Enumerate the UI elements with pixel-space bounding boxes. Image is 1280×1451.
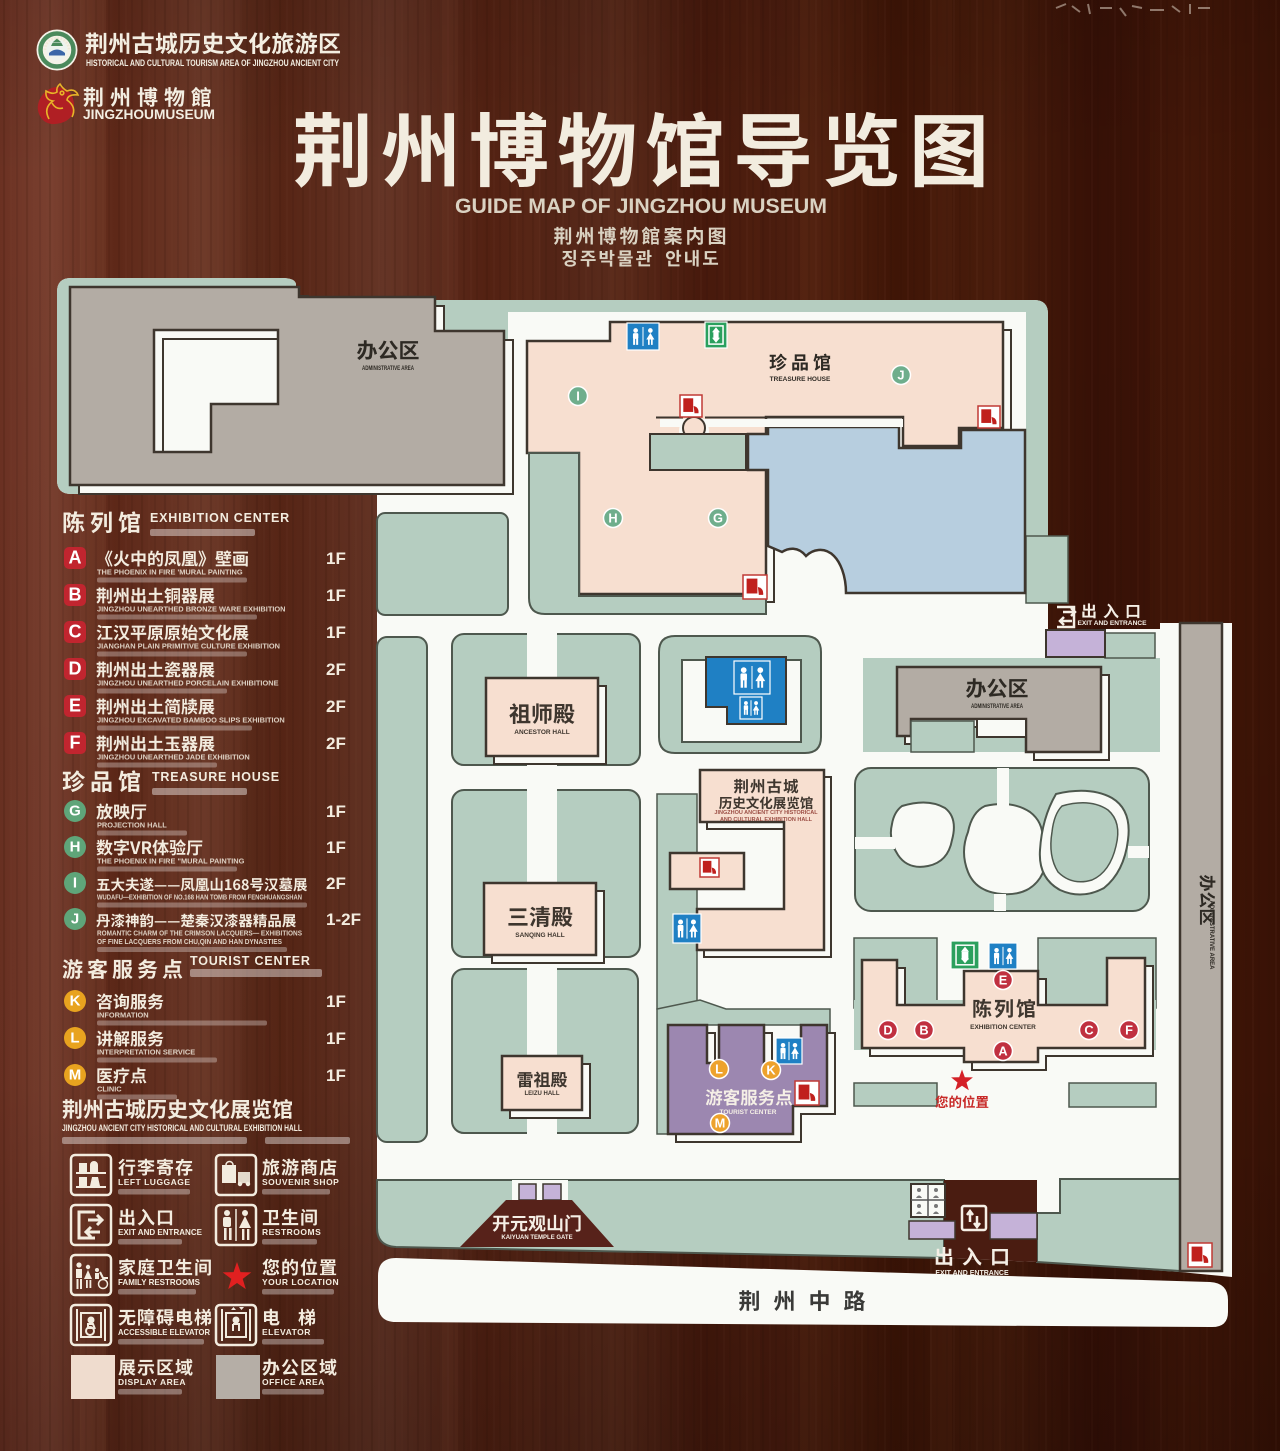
svg-text:JINGZHOU ANCIENT CITY HISTORIC: JINGZHOU ANCIENT CITY HISTORICAL (714, 810, 818, 816)
svg-text:SOUVENIR SHOP: SOUVENIR SHOP (262, 1177, 339, 1187)
svg-text:1-2F: 1-2F (326, 910, 361, 929)
svg-text:FAMILY RESTROOMS: FAMILY RESTROOMS (118, 1277, 200, 1287)
svg-text:B: B (919, 1023, 928, 1038)
svg-text:D: D (883, 1023, 892, 1038)
svg-text:ELEVATOR: ELEVATOR (262, 1327, 311, 1337)
svg-text:OF FINE LACQUERS FROM CHU,QIN: OF FINE LACQUERS FROM CHU,QIN AND HAN DY… (97, 937, 282, 946)
svg-text:WUDAFU—EXHIBITION OF NO.168 HA: WUDAFU—EXHIBITION OF NO.168 HAN TOMB FRO… (97, 893, 302, 902)
svg-text:JINGZHOU UNEARTHED PORCELAIN E: JINGZHOU UNEARTHED PORCELAIN EXHIBITIONE (97, 679, 279, 688)
svg-text:HISTORICAL AND CULTURAL TOURIS: HISTORICAL AND CULTURAL TOURISM AREA OF … (86, 58, 339, 68)
svg-text:F: F (69, 733, 80, 753)
svg-text:I: I (73, 875, 77, 892)
svg-text:EXIT AND ENTRANCE: EXIT AND ENTRANCE (118, 1227, 202, 1237)
svg-text:1F: 1F (326, 992, 346, 1011)
svg-text:JINGZHOU UNEARTHED JADE EXHIBI: JINGZHOU UNEARTHED JADE EXHIBITION (97, 753, 250, 762)
svg-text:D: D (68, 659, 81, 679)
svg-text:J: J (71, 911, 79, 928)
svg-text:YOUR LOCATION: YOUR LOCATION (262, 1277, 339, 1287)
svg-text:RESTROOMS: RESTROOMS (262, 1227, 321, 1237)
svg-text:EXHIBITION CENTER: EXHIBITION CENTER (970, 1024, 1036, 1031)
svg-text:L: L (715, 1062, 723, 1077)
svg-text:LEFT LUGGAGE: LEFT LUGGAGE (118, 1177, 191, 1187)
svg-text:OFFICE AREA: OFFICE AREA (262, 1377, 325, 1387)
svg-text:TOURIST CENTER: TOURIST CENTER (720, 1109, 777, 1116)
svg-text:A: A (68, 548, 81, 568)
svg-text:1F: 1F (326, 623, 346, 642)
svg-text:1F: 1F (326, 838, 346, 857)
svg-text:JINGZHOU UNEARTHED BRONZE WARE: JINGZHOU UNEARTHED BRONZE WARE EXHIBITIO… (97, 605, 285, 614)
svg-text:C: C (1084, 1023, 1093, 1038)
svg-text:AND CULTURAL EXHIBITION HALL: AND CULTURAL EXHIBITION HALL (720, 817, 813, 823)
svg-text:C: C (68, 622, 81, 642)
svg-text:1F: 1F (326, 549, 346, 568)
svg-text:JINGZHOUMUSEUM: JINGZHOUMUSEUM (83, 107, 215, 122)
svg-text:INTERPRETATION SERVICE: INTERPRETATION SERVICE (97, 1048, 195, 1057)
svg-text:G: G (69, 803, 81, 820)
svg-text:JINGZHOU EXCAVATED BAMBOO SLIP: JINGZHOU EXCAVATED BAMBOO SLIPS EXHIBITI… (97, 716, 285, 725)
svg-text:2F: 2F (326, 874, 346, 893)
svg-text:L: L (70, 1030, 79, 1047)
svg-text:LEIZU HALL: LEIZU HALL (525, 1091, 560, 1097)
svg-text:JIANGHAN PLAIN PRIMITIVE CULTU: JIANGHAN PLAIN PRIMITIVE CULTURE EXHIBIT… (97, 642, 280, 651)
svg-text:TREASURE HOUSE: TREASURE HOUSE (770, 376, 831, 383)
svg-text:ADMINISTRATIVE AREA: ADMINISTRATIVE AREA (971, 703, 1023, 710)
svg-text:1F: 1F (326, 802, 346, 821)
svg-text:G: G (713, 511, 723, 526)
svg-text:E: E (999, 973, 1008, 988)
svg-text:J: J (897, 368, 904, 383)
svg-text:M: M (69, 1067, 82, 1084)
svg-text:ACCESSIBLE ELEVATOR: ACCESSIBLE ELEVATOR (118, 1327, 210, 1337)
svg-text:K: K (766, 1063, 776, 1078)
svg-text:I: I (576, 389, 580, 404)
svg-text:EXHIBITION CENTER: EXHIBITION CENTER (150, 511, 290, 525)
svg-text:JINGZHOU ANCIENT CITY HISTORIC: JINGZHOU ANCIENT CITY HISTORICAL AND CUL… (62, 1123, 302, 1133)
svg-text:ADMINISTRATIVE AREA: ADMINISTRATIVE AREA (362, 365, 414, 372)
svg-text:INFORMATION: INFORMATION (97, 1011, 149, 1020)
svg-text:F: F (1125, 1023, 1133, 1038)
svg-text:A: A (998, 1044, 1007, 1059)
svg-text:ADMINISTRATIVE AREA: ADMINISTRATIVE AREA (1208, 901, 1214, 971)
svg-text:2F: 2F (326, 734, 346, 753)
svg-text:CLINIC: CLINIC (97, 1085, 122, 1094)
svg-text:K: K (70, 993, 81, 1010)
svg-text:TOURIST CENTER: TOURIST CENTER (190, 954, 311, 968)
svg-text:B: B (68, 585, 81, 605)
svg-text:DISPLAY AREA: DISPLAY AREA (118, 1377, 186, 1387)
svg-text:1F: 1F (326, 586, 346, 605)
svg-text:SANQING HALL: SANQING HALL (515, 932, 565, 939)
svg-text:PROJECTION HALL: PROJECTION HALL (97, 821, 167, 830)
svg-text:KAIYUAN TEMPLE GATE: KAIYUAN TEMPLE GATE (501, 1235, 572, 1241)
svg-text:GUIDE MAP OF JINGZHOU MUSEUM: GUIDE MAP OF JINGZHOU MUSEUM (455, 194, 827, 218)
svg-text:TREASURE HOUSE: TREASURE HOUSE (152, 770, 280, 784)
svg-text:THE PHOENIX IN FIRE 'MURAL PAI: THE PHOENIX IN FIRE 'MURAL PAINTING (97, 568, 243, 577)
svg-text:2F: 2F (326, 697, 346, 716)
svg-text:THE PHOENIX IN FIRE "MURAL PAI: THE PHOENIX IN FIRE "MURAL PAINTING (97, 857, 245, 866)
svg-text:H: H (608, 511, 617, 526)
svg-text:1F: 1F (326, 1029, 346, 1048)
svg-text:EXIT AND ENTRANCE: EXIT AND ENTRANCE (1078, 620, 1148, 627)
svg-text:E: E (69, 696, 81, 716)
svg-text:M: M (715, 1116, 726, 1131)
svg-text:2F: 2F (326, 660, 346, 679)
svg-text:H: H (70, 839, 81, 856)
svg-text:ANCESTOR HALL: ANCESTOR HALL (514, 729, 570, 736)
svg-text:1F: 1F (326, 1066, 346, 1085)
